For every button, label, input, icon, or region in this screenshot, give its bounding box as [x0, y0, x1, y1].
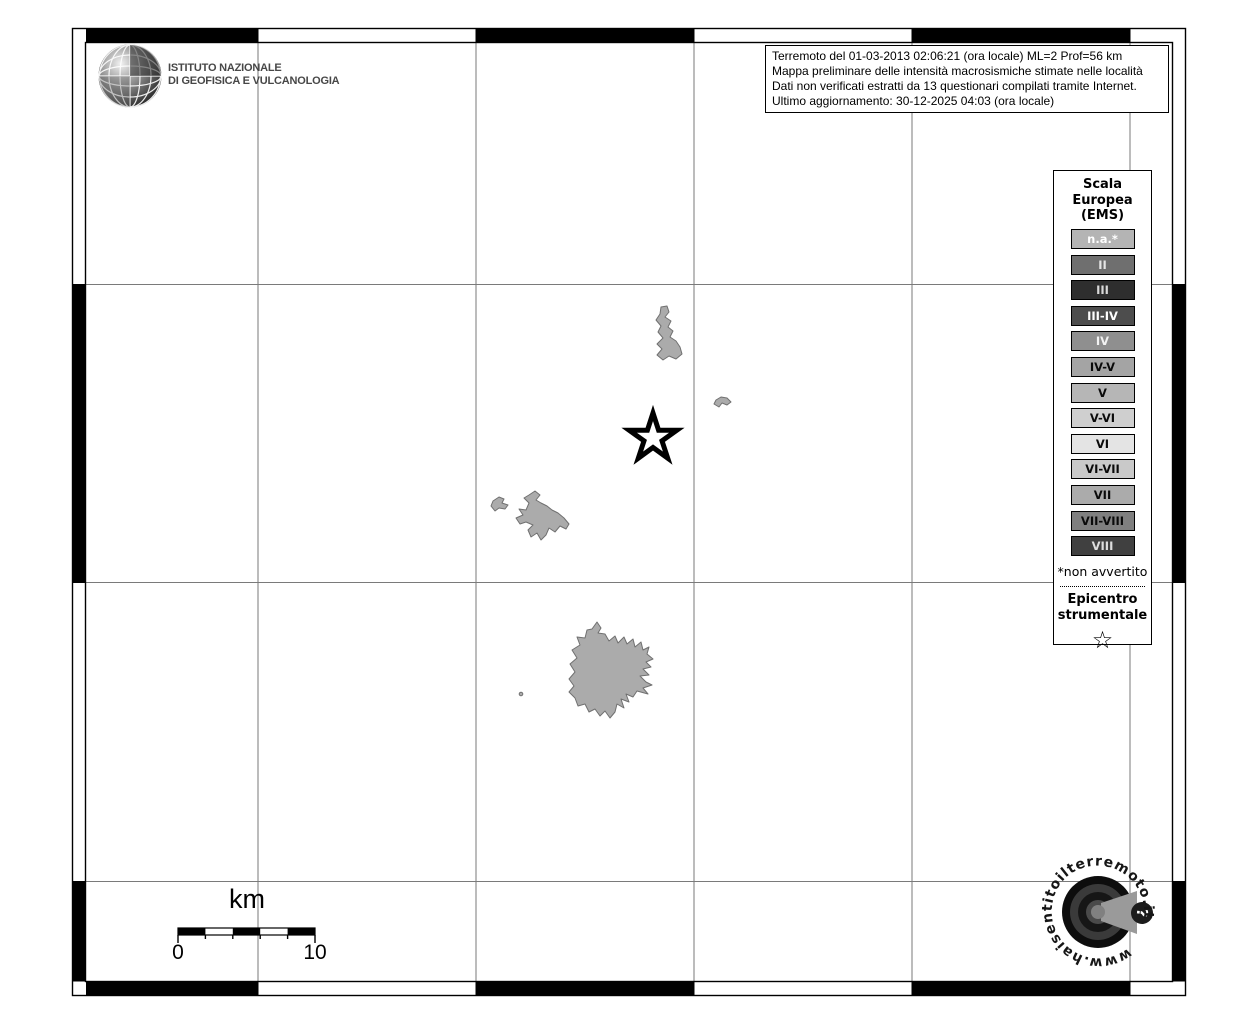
- ems-legend: Scala Europea (EMS) n.a.* II III III-IV …: [1053, 170, 1152, 645]
- scale-bar-start: 0: [172, 941, 184, 965]
- ingv-globe-icon: [99, 45, 161, 107]
- legend-item-III: III: [1071, 280, 1135, 300]
- legend-item-VII-VIII: VII-VIII: [1071, 511, 1135, 531]
- event-info-line4: Ultimo aggiornamento: 30-12-2025 04:03 (…: [772, 94, 1162, 109]
- legend-item-V-VI: V-VI: [1071, 408, 1135, 428]
- legend-footnote: *non avvertito: [1054, 564, 1151, 579]
- ingv-name-line2: DI GEOFISICA E VULCANOLOGIA: [168, 75, 339, 88]
- legend-title-line3: (EMS): [1054, 208, 1151, 224]
- legend-divider: [1060, 586, 1145, 587]
- event-info-line3: Dati non verificati estratti da 13 quest…: [772, 79, 1162, 94]
- event-info-box: Terremoto del 01-03-2013 02:06:21 (ora l…: [765, 45, 1169, 113]
- legend-item-VII: VII: [1071, 485, 1135, 505]
- event-info-line2: Mappa preliminare delle intensità macros…: [772, 64, 1162, 79]
- epicenter-star-icon: ☆: [1054, 627, 1151, 653]
- legend-title-line1: Scala: [1054, 177, 1151, 193]
- legend-item-II: II: [1071, 255, 1135, 275]
- legend-epicenter-line2: strumentale: [1054, 608, 1151, 624]
- legend-item-IV: IV: [1071, 331, 1135, 351]
- event-info-line1: Terremoto del 01-03-2013 02:06:21 (ora l…: [772, 49, 1162, 64]
- scale-bar-unit: km: [229, 884, 265, 915]
- legend-item-IV-V: IV-V: [1071, 357, 1135, 377]
- ingv-wordmark: ISTITUTO NAZIONALE DI GEOFISICA E VULCAN…: [168, 62, 339, 88]
- legend-epicenter-line1: Epicentro: [1054, 592, 1151, 608]
- legend-title-line2: Europea: [1054, 193, 1151, 209]
- legend-item-V: V: [1071, 383, 1135, 403]
- legend-item-VIII: VIII: [1071, 536, 1135, 556]
- macroseismic-map-page: { "header": { "ingv_name_line1": "ISTITU…: [0, 0, 1255, 1024]
- locality-dot: [519, 692, 523, 696]
- legend-item-na: n.a.*: [1071, 229, 1135, 249]
- legend-item-III-IV: III-IV: [1071, 306, 1135, 326]
- scale-bar-end: 10: [303, 941, 326, 965]
- legend-item-VI-VII: VI-VII: [1071, 459, 1135, 479]
- ingv-name-line1: ISTITUTO NAZIONALE: [168, 62, 339, 75]
- legend-item-VI: VI: [1071, 434, 1135, 454]
